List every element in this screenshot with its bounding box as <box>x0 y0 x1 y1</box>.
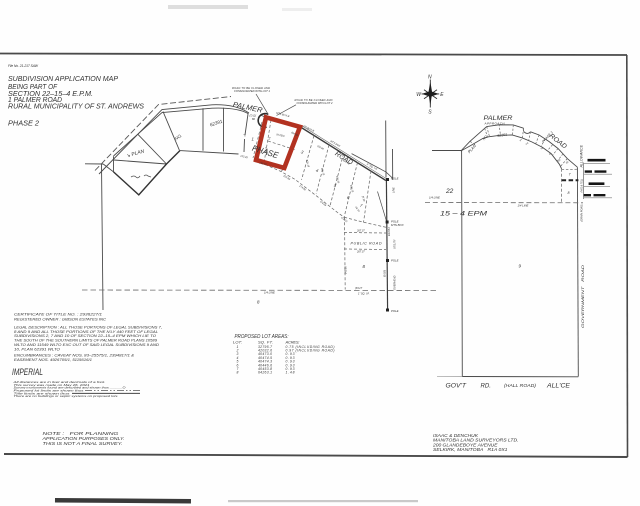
svg-text:CONSOLIDATED WITH LOT 2: CONSOLIDATED WITH LOT 2 <box>297 101 334 105</box>
svg-text:1/4 LINE: 1/4 LINE <box>518 204 529 208</box>
svg-text:8: 8 <box>237 371 239 375</box>
svg-text:(HYD & TEL): (HYD & TEL) <box>582 179 584 193</box>
svg-text:8: 8 <box>568 191 570 195</box>
svg-text:POLE: POLE <box>391 177 399 181</box>
svg-text:UTILITY: UTILITY <box>393 239 397 249</box>
svg-text:243.58: 243.58 <box>345 266 348 275</box>
svg-text:MTS BOX: MTS BOX <box>391 223 404 227</box>
svg-text:RURAL MUNICIPALITY OF ST. ANDR: RURAL MUNICIPALITY OF ST. ANDREWS <box>8 102 144 111</box>
svg-text:E04 B4: E04 B4 <box>387 227 391 236</box>
svg-text:APPROACH: APPROACH <box>484 122 506 126</box>
svg-text:1/4 LINE: 1/4 LINE <box>264 291 275 295</box>
svg-text:File No. 21-217 SAW: File No. 21-217 SAW <box>8 64 39 68</box>
svg-text:10, PLAN 62391 WLTO: 10, PLAN 62391 WLTO <box>14 346 60 351</box>
svg-text:POLE: POLE <box>391 309 399 313</box>
svg-text:15 – 4 EPM: 15 – 4 EPM <box>440 211 488 218</box>
svg-text:GOV'T: GOV'T <box>446 383 468 389</box>
svg-text:ALL'CE: ALL'CE <box>546 383 571 389</box>
svg-text:(9.92(: (9.92( <box>383 269 387 277</box>
svg-text:(HALL ROAD): (HALL ROAD) <box>504 383 537 388</box>
svg-text:PUBLIC ROAD: PUBLIC ROAD <box>351 242 382 246</box>
svg-text:EASEMENT NOS. 4926705/1, 51156: EASEMENT NOS. 4926705/1, 5115616/1 <box>14 357 92 362</box>
svg-text:CONSOLIDATED WITH LOT 1: CONSOLIDATED WITH LOT 1 <box>234 89 271 93</box>
svg-text:LINE: LINE <box>392 187 396 193</box>
svg-text:2: 2 <box>268 137 271 141</box>
svg-text:1: 1 <box>252 137 254 142</box>
svg-text:22: 22 <box>445 188 454 195</box>
svg-text:267.37: 267.37 <box>356 251 365 254</box>
svg-text:RD.: RD. <box>481 383 492 389</box>
svg-text:REGISTERED OWNER : GIBSON ESTA: REGISTERED OWNER : GIBSON ESTATES INC <box>14 317 106 322</box>
svg-text:SELKIRK, MANITOBA R1A 0X1: SELKIRK, MANITOBA R1A 0X1 <box>433 447 508 452</box>
svg-text:THIS IS NOT A FINAL SURVEY.: THIS IS NOT A FINAL SURVEY. <box>43 441 123 446</box>
svg-text:267.37: 267.37 <box>356 230 365 233</box>
svg-text:(83.27: (83.27 <box>355 287 363 290</box>
svg-text:(DRAIN ROAD): (DRAIN ROAD) <box>581 204 584 222</box>
svg-text:1.48: 1.48 <box>286 371 295 375</box>
svg-text:IMPERIAL: IMPERIAL <box>12 367 43 378</box>
svg-text:1" SQ. I.P.: 1" SQ. I.P. <box>358 293 370 296</box>
svg-text:GOVERNMENT ROAD: GOVERNMENT ROAD <box>581 265 585 328</box>
svg-text:OVERHEAD: OVERHEAD <box>393 275 397 290</box>
svg-text:PHASE 2: PHASE 2 <box>8 119 40 128</box>
svg-text:ALLOWANCE: ALLOWANCE <box>580 144 584 168</box>
svg-text:64263.1: 64263.1 <box>258 371 272 375</box>
svg-text:1/4 LINE: 1/4 LINE <box>429 195 440 199</box>
svg-text:POLE: POLE <box>391 259 399 263</box>
svg-text:N: N <box>428 75 432 81</box>
svg-text:There are no buildings or sept: There are no buildings or septic systems… <box>14 394 119 398</box>
